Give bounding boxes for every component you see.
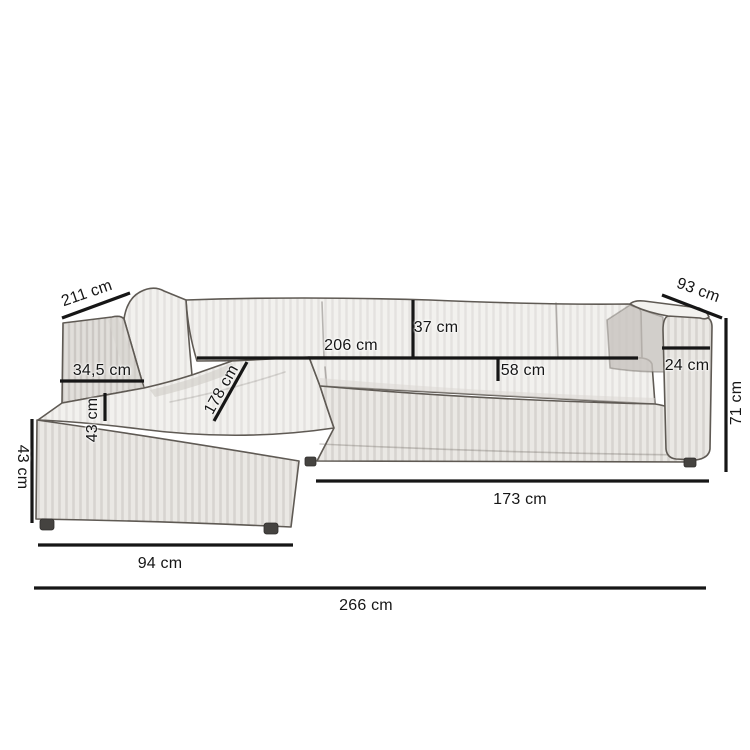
- dim-label-94: 94 cm: [138, 556, 183, 572]
- sofa-armrest-right: [663, 316, 712, 460]
- dim-label-43-seat: 43 cm: [85, 398, 101, 443]
- dim-label-43-height: 43 cm: [14, 445, 30, 490]
- dim-label-24: 24 cm: [665, 358, 710, 374]
- dim-label-34-5: 34,5 cm: [73, 363, 131, 379]
- sofa-sketch: [36, 288, 712, 534]
- dim-label-58: 58 cm: [501, 363, 546, 379]
- dim-label-37: 37 cm: [414, 320, 459, 336]
- product-dimension-diagram: 211 cm 34,5 cm 43 cm 43 cm 178 cm 206 cm…: [0, 0, 750, 750]
- dim-label-173: 173 cm: [493, 492, 547, 508]
- dim-label-206: 206 cm: [324, 338, 378, 354]
- sofa-chaise-front: [36, 420, 299, 527]
- dim-label-266: 266 cm: [339, 598, 393, 614]
- dim-label-71: 71 cm: [729, 381, 745, 426]
